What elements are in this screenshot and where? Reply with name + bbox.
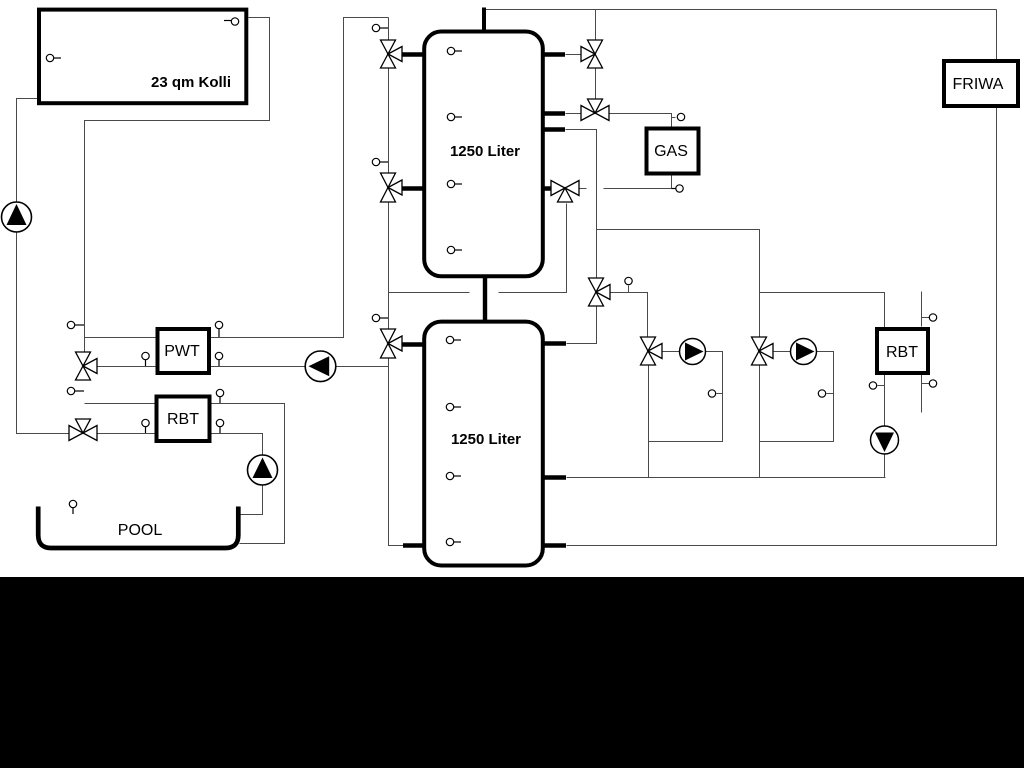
svg-text:1250 Liter: 1250 Liter <box>451 431 521 448</box>
svg-text:GAS: GAS <box>654 143 688 160</box>
svg-text:23 qm Kolli: 23 qm Kolli <box>151 74 231 91</box>
svg-text:RBT: RBT <box>886 344 918 361</box>
svg-text:FRIWA: FRIWA <box>953 76 1004 93</box>
svg-text:1250 Liter: 1250 Liter <box>450 143 520 160</box>
svg-text:RBT: RBT <box>167 411 199 428</box>
svg-text:POOL: POOL <box>118 522 163 539</box>
svg-text:PWT: PWT <box>164 343 200 360</box>
